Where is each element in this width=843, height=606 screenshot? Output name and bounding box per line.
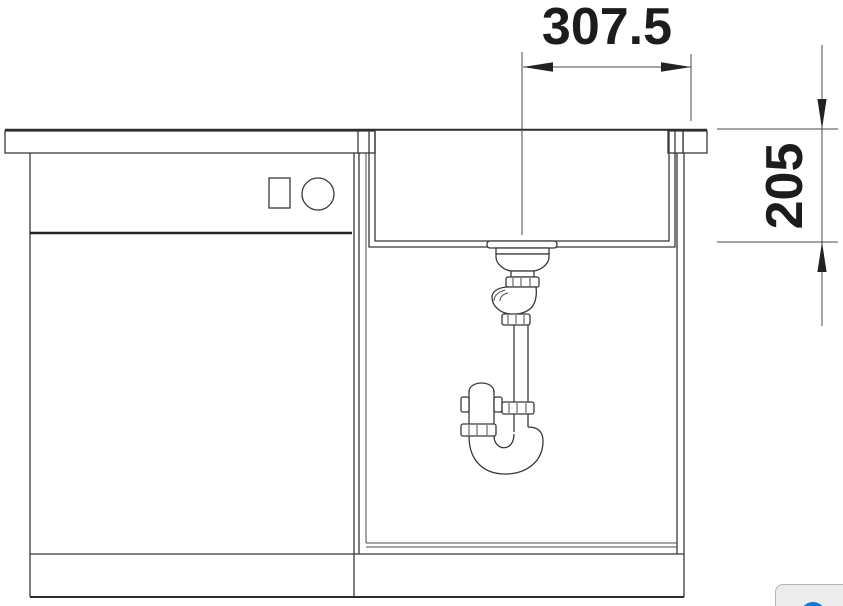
drain-neck (511, 271, 534, 277)
drain-body-cup (496, 254, 549, 271)
drain-union-nut-lower (502, 314, 530, 325)
sink-flange-left (358, 131, 375, 153)
dimension-depth: 205 (717, 45, 838, 326)
dim-width-arrow-right (661, 62, 691, 72)
countertop-right-section (683, 131, 707, 153)
handle-cutout-circle (302, 178, 334, 210)
chat-widget-blue-dot-icon[interactable] (800, 602, 826, 606)
dim-depth-arrow-bottom (817, 242, 826, 272)
technical-drawing-page: 307.5 205 (0, 0, 843, 606)
dimension-width: 307.5 (523, 0, 691, 121)
trap-pipe-union-nut (502, 402, 534, 414)
chat-widget-canvas (776, 585, 843, 606)
dim-depth-arrow-top (817, 99, 826, 129)
countertop-left-section (5, 131, 360, 153)
trap-arm-side-nut-left (461, 397, 469, 412)
p-trap-inner-bend (494, 434, 514, 448)
trap-arm-cap (469, 383, 494, 392)
handle-cutout-rect (269, 178, 290, 208)
chat-widget[interactable] (775, 584, 843, 606)
trap-arm-side-nut-right (494, 397, 502, 412)
drain-union-nut-upper (506, 277, 539, 287)
trap-arm-union-nut (461, 424, 496, 436)
dim-width-label: 307.5 (542, 0, 672, 56)
strainer-collar (496, 248, 549, 254)
strainer-flange (487, 241, 557, 248)
dim-depth-label: 205 (756, 143, 814, 230)
countertop (5, 130, 707, 153)
dim-width-arrow-left (523, 62, 553, 72)
cabinet (30, 153, 684, 597)
drain-elbow (492, 287, 536, 314)
drain-assembly (461, 241, 557, 474)
sink-technical-drawing: 307.5 205 (0, 0, 843, 606)
